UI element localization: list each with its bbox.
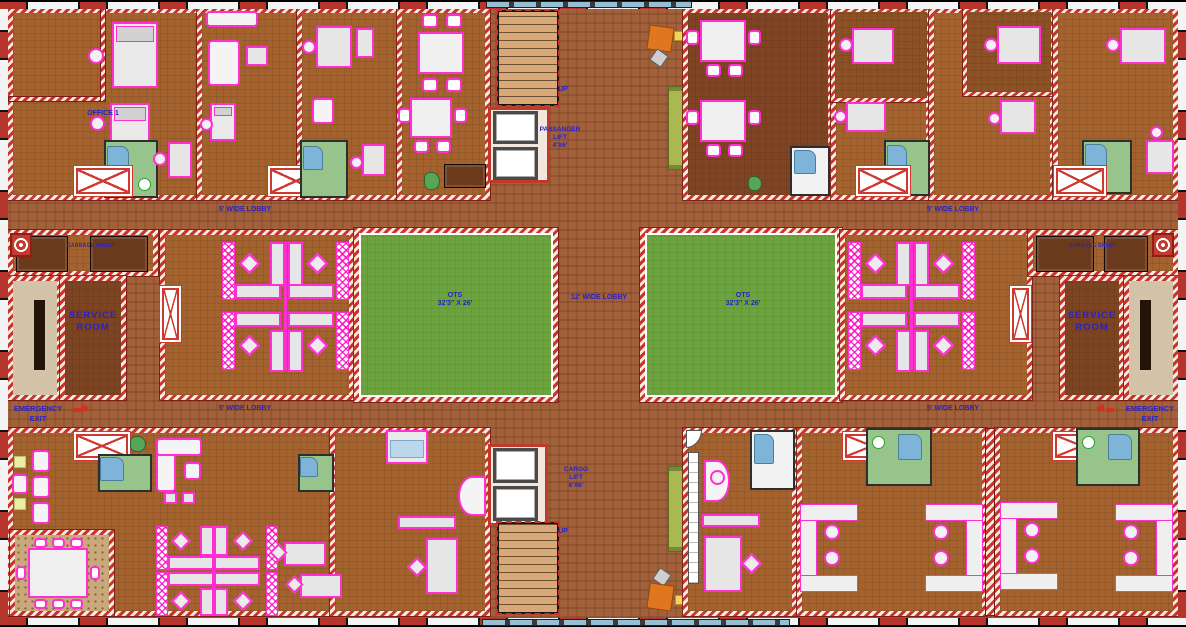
lift-cabin bbox=[493, 486, 538, 521]
u-desk bbox=[1115, 504, 1173, 521]
chair bbox=[834, 110, 847, 123]
conference-table bbox=[28, 548, 88, 598]
workstation-desk bbox=[168, 556, 214, 570]
cubicle-partition bbox=[848, 242, 861, 300]
chair bbox=[1024, 522, 1040, 538]
shower bbox=[303, 146, 323, 170]
desk bbox=[284, 542, 326, 566]
conference-chair bbox=[70, 538, 83, 548]
cargo-lift-label: CARGO LIFT 6'X6' bbox=[548, 466, 604, 489]
cubicle-partition bbox=[222, 312, 235, 370]
chair bbox=[153, 152, 167, 166]
side-table bbox=[14, 498, 26, 510]
lobby-label-top-left: 5' WIDE LOBBY bbox=[200, 206, 290, 214]
workstation-desk bbox=[288, 330, 303, 372]
dining-table bbox=[410, 98, 452, 138]
armchair bbox=[312, 98, 334, 124]
chair bbox=[710, 470, 725, 485]
workstation-desk bbox=[235, 284, 281, 299]
u-desk bbox=[800, 575, 858, 592]
workstation-desk bbox=[235, 312, 281, 327]
partition-wall bbox=[8, 96, 106, 102]
chair bbox=[88, 48, 104, 64]
dining-chair bbox=[454, 108, 467, 123]
chair bbox=[1024, 548, 1040, 564]
workstation-desk bbox=[914, 312, 960, 327]
dining-chair bbox=[446, 78, 462, 92]
bed bbox=[112, 22, 158, 88]
cabinet bbox=[702, 514, 760, 527]
toilet bbox=[748, 176, 762, 191]
dining-table bbox=[700, 20, 746, 62]
chair bbox=[200, 118, 213, 131]
toilet bbox=[872, 436, 885, 449]
dining-chair bbox=[686, 110, 699, 125]
corridor-right bbox=[1124, 276, 1178, 400]
workstation-desk bbox=[288, 312, 334, 327]
closet bbox=[90, 236, 148, 272]
desk bbox=[1120, 28, 1166, 64]
workstation-desk bbox=[288, 242, 303, 286]
bathtub bbox=[754, 434, 774, 464]
cabinet bbox=[444, 164, 486, 188]
u-desk bbox=[800, 504, 858, 521]
cabinet bbox=[398, 516, 456, 529]
cubicle-divider bbox=[910, 242, 913, 370]
wall-left bbox=[0, 9, 8, 618]
dining-chair bbox=[422, 14, 438, 28]
shower bbox=[1085, 144, 1107, 168]
workstation-desk bbox=[861, 312, 907, 327]
lobby-label-top-right: 5' WIDE LOBBY bbox=[908, 206, 998, 214]
chair bbox=[1150, 126, 1163, 139]
dining-chair bbox=[686, 30, 699, 45]
passenger-lift-label: PASSANGER LIFT 4'X6' bbox=[524, 126, 596, 149]
floor-plan: OFFICE 1 UP PASSANGER LIFT 4'X6' bbox=[0, 0, 1186, 627]
reception-desk bbox=[646, 24, 674, 52]
cubicle-partition bbox=[962, 242, 975, 300]
sofa bbox=[206, 11, 258, 27]
desk bbox=[362, 144, 386, 176]
u-desk bbox=[925, 575, 983, 592]
door-leaf bbox=[1140, 300, 1151, 370]
side-table bbox=[182, 492, 195, 504]
toilet bbox=[1082, 436, 1095, 449]
conference-chair bbox=[90, 566, 100, 580]
cabinet bbox=[356, 28, 374, 58]
desk bbox=[704, 536, 742, 592]
workstation-desk bbox=[214, 556, 260, 570]
dining-chair bbox=[706, 144, 721, 157]
exit-arrow-icon bbox=[1096, 404, 1104, 412]
chair bbox=[350, 156, 363, 169]
exit-arrow-icon bbox=[74, 408, 82, 412]
desk bbox=[997, 26, 1041, 64]
service-room-left bbox=[60, 276, 126, 400]
cubicle-partition bbox=[156, 572, 168, 616]
cubicle-partition bbox=[848, 312, 861, 370]
garbage-shoot-label-left: GARBAGE SHOOT bbox=[58, 243, 124, 249]
cubicle-partition bbox=[222, 242, 235, 300]
workstation-desk bbox=[214, 588, 228, 616]
bed bbox=[386, 430, 428, 464]
chair bbox=[988, 112, 1001, 125]
workstation-desk bbox=[861, 284, 907, 299]
u-desk bbox=[1000, 573, 1058, 590]
cubicle-divider bbox=[212, 528, 215, 614]
conference-chair bbox=[70, 599, 83, 609]
glazing-bottom bbox=[482, 619, 790, 626]
dining-table bbox=[700, 100, 746, 142]
cubicle-partition bbox=[962, 312, 975, 370]
u-desk bbox=[1115, 575, 1173, 592]
wall-right bbox=[1178, 9, 1186, 618]
exit-arrow-icon bbox=[1106, 408, 1114, 412]
chair bbox=[1106, 38, 1120, 52]
stairs-up-label: UP bbox=[550, 528, 576, 536]
dining-chair bbox=[422, 78, 438, 92]
side-table bbox=[14, 456, 26, 468]
cubicle-divider bbox=[284, 242, 287, 370]
ots-left-label: OTS 32'3" X 26' bbox=[400, 292, 510, 309]
shower bbox=[1108, 434, 1132, 460]
side-table bbox=[246, 46, 268, 66]
conference-chair bbox=[34, 599, 47, 609]
toilet bbox=[424, 172, 440, 190]
dining-chair bbox=[748, 30, 761, 45]
l-sofa bbox=[156, 438, 202, 456]
chair bbox=[1123, 524, 1139, 540]
service-room-right bbox=[1060, 276, 1124, 400]
door-x-panel bbox=[1056, 168, 1104, 194]
conference-chair bbox=[52, 599, 65, 609]
door-x-panel bbox=[76, 168, 130, 194]
workstation-desk bbox=[914, 330, 929, 372]
cubicle-partition bbox=[336, 242, 349, 300]
reception-desk bbox=[646, 582, 674, 611]
emergency-exit-right: EMERGENCY EXIT bbox=[1096, 404, 1186, 426]
desk bbox=[1146, 140, 1174, 174]
dining-table bbox=[418, 32, 464, 74]
dining-chair bbox=[706, 64, 721, 77]
side-table bbox=[164, 492, 177, 504]
workstation-desk bbox=[270, 330, 285, 372]
service-room-label-left: SERVICE ROOM bbox=[64, 310, 122, 334]
dining-chair bbox=[728, 64, 743, 77]
reception-desk bbox=[458, 476, 486, 516]
door-x-panel bbox=[858, 168, 908, 194]
desk bbox=[316, 26, 352, 68]
chair bbox=[824, 524, 840, 540]
sofa bbox=[208, 40, 240, 86]
door-x-panel bbox=[162, 288, 179, 340]
conference-chair bbox=[34, 538, 47, 548]
ots-right bbox=[640, 228, 842, 402]
desk bbox=[300, 574, 342, 598]
armchair bbox=[12, 474, 28, 494]
bathtub bbox=[794, 150, 816, 174]
toilet bbox=[138, 178, 151, 191]
exit-arrow-icon bbox=[82, 404, 90, 412]
chair bbox=[824, 550, 840, 566]
armchair bbox=[32, 450, 50, 472]
ots-right-label: OTS 32'3" X 26' bbox=[688, 292, 798, 309]
door-x-panel bbox=[1012, 288, 1029, 340]
dining-chair bbox=[436, 140, 451, 153]
desk bbox=[168, 142, 192, 178]
desk bbox=[426, 538, 458, 594]
cubicle-partition bbox=[156, 526, 168, 570]
emergency-exit-left: EMERGENCY EXIT bbox=[4, 404, 98, 426]
closet bbox=[1104, 236, 1148, 272]
desk bbox=[1000, 100, 1036, 134]
workstation-desk bbox=[168, 572, 214, 586]
chair bbox=[933, 524, 949, 540]
armchair bbox=[32, 476, 50, 498]
workstation-desk bbox=[914, 284, 960, 299]
workstation-desk bbox=[270, 242, 285, 286]
garbage-chute-fixture bbox=[10, 233, 32, 257]
dining-chair bbox=[398, 108, 411, 123]
chair bbox=[839, 38, 853, 52]
lift-cabin bbox=[493, 448, 538, 483]
bed bbox=[210, 103, 236, 141]
workstation-desk bbox=[896, 242, 911, 286]
dining-chair bbox=[446, 14, 462, 28]
shelf bbox=[688, 452, 699, 584]
conference-chair bbox=[16, 566, 26, 580]
partition-wall bbox=[985, 428, 995, 616]
closet bbox=[1036, 236, 1094, 272]
garbage-shoot-label-right: GARBAGE SHOOT bbox=[1060, 243, 1126, 249]
u-desk bbox=[1000, 502, 1058, 519]
desk bbox=[852, 28, 894, 64]
stairs-up-label: UP bbox=[550, 86, 576, 94]
chair bbox=[302, 40, 316, 54]
u-desk bbox=[925, 504, 983, 521]
chair bbox=[933, 550, 949, 566]
chair bbox=[1123, 550, 1139, 566]
workstation-desk bbox=[214, 526, 228, 556]
armchair bbox=[32, 502, 50, 524]
lobby-label-center: 12' WIDE LOBBY bbox=[552, 294, 646, 302]
chair bbox=[984, 38, 998, 52]
room-label-office1: OFFICE 1 bbox=[65, 110, 141, 118]
garbage-chute-fixture bbox=[1152, 233, 1174, 257]
cubicle-partition bbox=[336, 312, 349, 370]
shower bbox=[100, 457, 124, 481]
dining-chair bbox=[728, 144, 743, 157]
desk bbox=[846, 102, 886, 132]
lobby-label-bottom-right: 5' WIDE LOBBY bbox=[908, 405, 998, 413]
workstation-desk bbox=[214, 572, 260, 586]
dining-chair bbox=[748, 110, 761, 125]
shower bbox=[887, 145, 907, 169]
ots-left bbox=[354, 228, 558, 402]
shower bbox=[300, 457, 318, 477]
workstation-desk bbox=[288, 284, 334, 299]
lobby-label-bottom-left: 5' WIDE LOBBY bbox=[200, 405, 290, 413]
door-leaf bbox=[34, 300, 45, 370]
glazing-top bbox=[486, 1, 692, 8]
toilet bbox=[130, 436, 146, 452]
lift-cabin bbox=[493, 147, 538, 180]
dining-chair bbox=[414, 140, 429, 153]
shower bbox=[898, 434, 922, 460]
conference-chair bbox=[52, 538, 65, 548]
cubicle-partition bbox=[266, 572, 278, 616]
service-room-label-right: SERVICE ROOM bbox=[1063, 310, 1121, 334]
armchair bbox=[184, 462, 201, 480]
workstation-desk bbox=[914, 242, 929, 286]
workstation-desk bbox=[896, 330, 911, 372]
